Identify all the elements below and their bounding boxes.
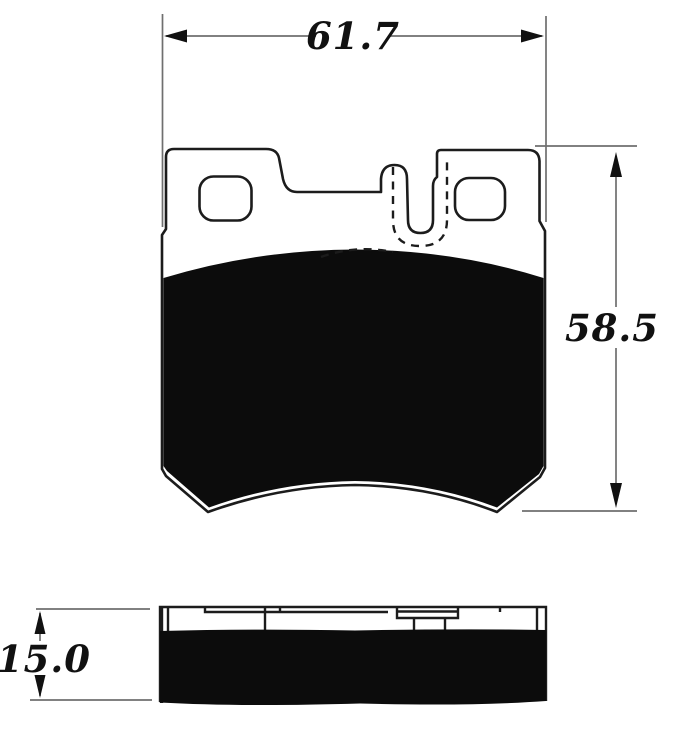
width-dimension-label: 61.7: [306, 14, 400, 58]
side-view: [160, 607, 546, 705]
arrowhead-left-icon: [164, 30, 187, 43]
left-hole: [200, 177, 252, 221]
height-dimension-label: 58.5: [565, 306, 659, 350]
friction-material: [164, 250, 544, 508]
thickness-dimension-label: 15.0: [0, 637, 91, 681]
side-friction-material: [160, 629, 546, 705]
arrowhead-down-icon: [610, 483, 622, 508]
arrowhead-up-icon: [610, 152, 622, 177]
thickness-dimension: 15.0: [0, 609, 152, 700]
arrowhead-right-icon: [521, 30, 544, 43]
arrowhead-up-icon: [35, 611, 46, 634]
right-hole: [455, 178, 505, 220]
brake-pad-diagram: 61.7 58.5: [0, 0, 676, 744]
front-view: [162, 149, 545, 512]
